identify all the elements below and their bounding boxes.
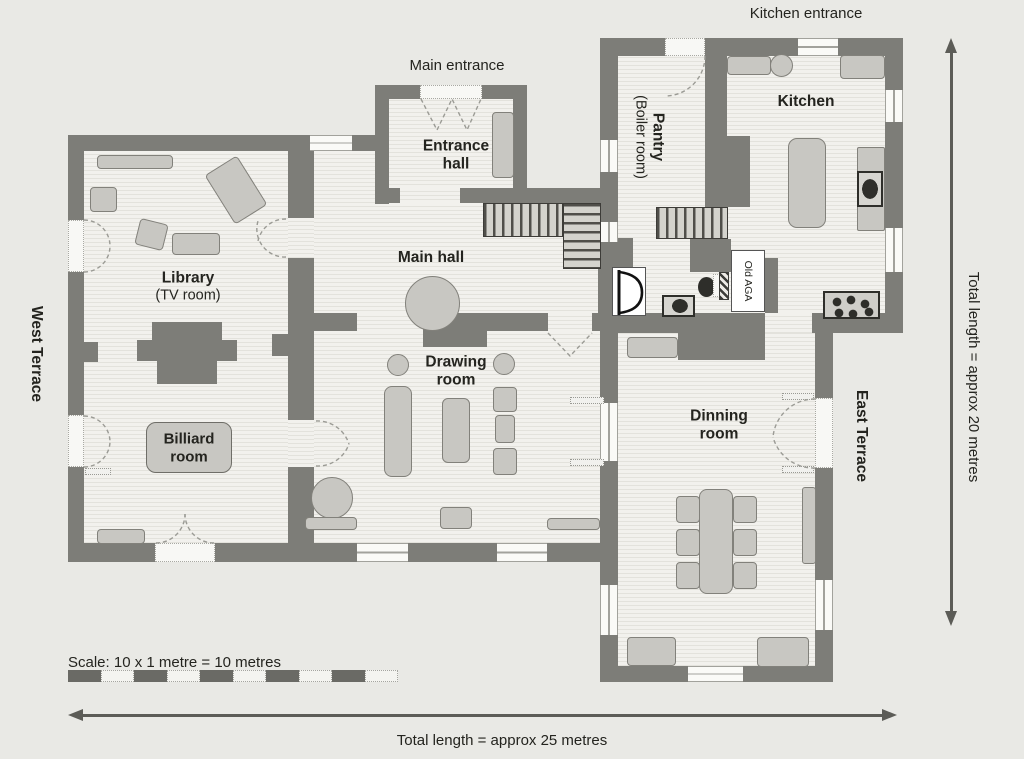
width-arrow-left-head bbox=[68, 709, 83, 721]
west-terrace-label: West Terrace bbox=[27, 306, 45, 402]
dinning-room-label: Dinningroom bbox=[690, 408, 748, 445]
total-height-label: Total length = approx 20 metres bbox=[964, 272, 982, 483]
scale-segment bbox=[332, 670, 365, 682]
main-entrance-label: Main entrance bbox=[409, 57, 504, 75]
height-arrow-top-head bbox=[945, 38, 957, 53]
kitchen-entrance-label: Kitchen entrance bbox=[750, 5, 863, 23]
width-arrow-line bbox=[82, 714, 883, 717]
scale-segment bbox=[101, 670, 134, 682]
drawing-room-label: Drawingroom bbox=[425, 354, 486, 391]
library-sublabel: (TV room) bbox=[155, 288, 220, 305]
library-label: Library (TV room) bbox=[155, 269, 220, 304]
door-swing-arcs bbox=[0, 0, 1024, 759]
scale-segment bbox=[266, 670, 299, 682]
scale-segment bbox=[299, 670, 332, 682]
entrance-hall-label: Entrancehall bbox=[423, 138, 489, 175]
main-hall-label: Main hall bbox=[398, 249, 464, 267]
total-width-label: Total length = approx 25 metres bbox=[397, 732, 608, 750]
pantry-sublabel: (Boiler room) bbox=[631, 95, 648, 179]
east-terrace-label: East Terrace bbox=[852, 390, 870, 482]
pantry-label: Pantry (Boiler room) bbox=[631, 95, 666, 179]
scale-segment bbox=[233, 670, 266, 682]
scale-bar bbox=[68, 670, 398, 682]
scale-segment bbox=[68, 670, 101, 682]
height-arrow-line bbox=[950, 51, 953, 612]
width-arrow-right-head bbox=[882, 709, 897, 721]
scale-segment bbox=[365, 670, 398, 682]
scale-segment bbox=[167, 670, 200, 682]
kitchen-label: Kitchen bbox=[778, 93, 835, 111]
floor-plan-canvas: Billiardroom Old AGA bbox=[0, 0, 1024, 759]
height-arrow-bottom-head bbox=[945, 611, 957, 626]
scale-segment bbox=[134, 670, 167, 682]
scale-segment bbox=[200, 670, 233, 682]
